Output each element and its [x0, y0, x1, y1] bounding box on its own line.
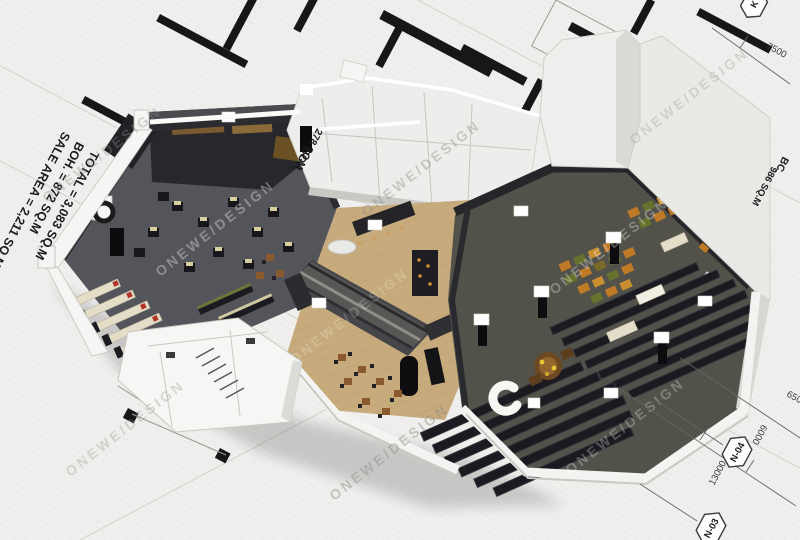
render-canvas: TOTAL = 3,083 SQ.M BOH. = 872 SQ.M SALE …	[0, 0, 800, 540]
floorplan-render: TOTAL = 3,083 SQ.M BOH. = 872 SQ.M SALE …	[0, 0, 800, 540]
